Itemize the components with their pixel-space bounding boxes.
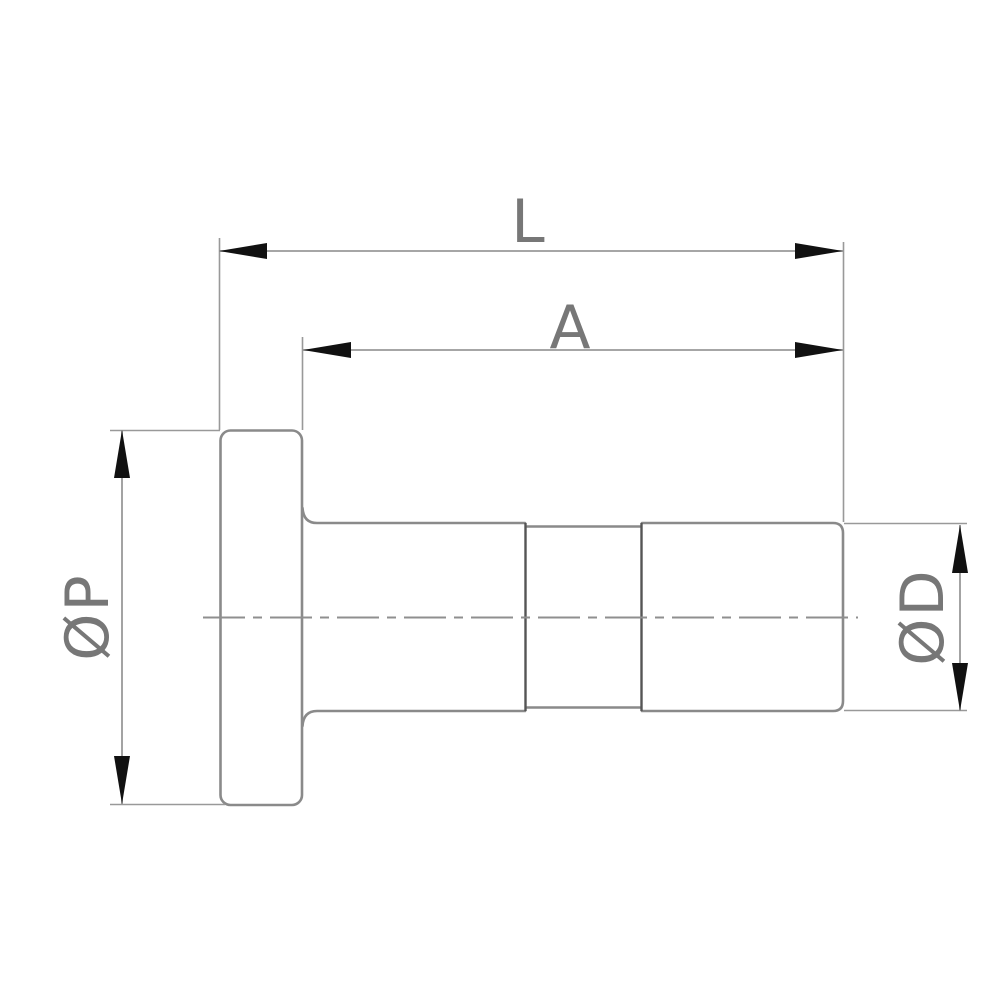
arrowhead-D-top-icon — [952, 525, 968, 573]
body-outline-bottom-left — [303, 711, 526, 726]
dim-label-overall-length: L — [511, 187, 546, 257]
arrowhead-D-bottom-icon — [952, 663, 968, 711]
technical-drawing-canvas: L A ØP ØD — [0, 0, 1000, 1000]
drawing-page: L A ØP ØD — [0, 0, 1000, 1000]
arrowhead-L-right-icon — [795, 243, 843, 259]
dim-label-body-length: A — [549, 293, 592, 363]
arrowhead-A-right-icon — [795, 342, 843, 358]
body-outline-top-left — [303, 508, 526, 523]
dim-label-flange-diameter: ØP — [53, 573, 123, 660]
arrowhead-L-left-icon — [219, 243, 267, 259]
arrowhead-P-bottom-icon — [114, 756, 130, 804]
dim-label-tube-diameter: ØD — [888, 568, 958, 665]
arrowhead-A-left-icon — [303, 342, 351, 358]
arrowhead-P-top-icon — [114, 430, 130, 478]
